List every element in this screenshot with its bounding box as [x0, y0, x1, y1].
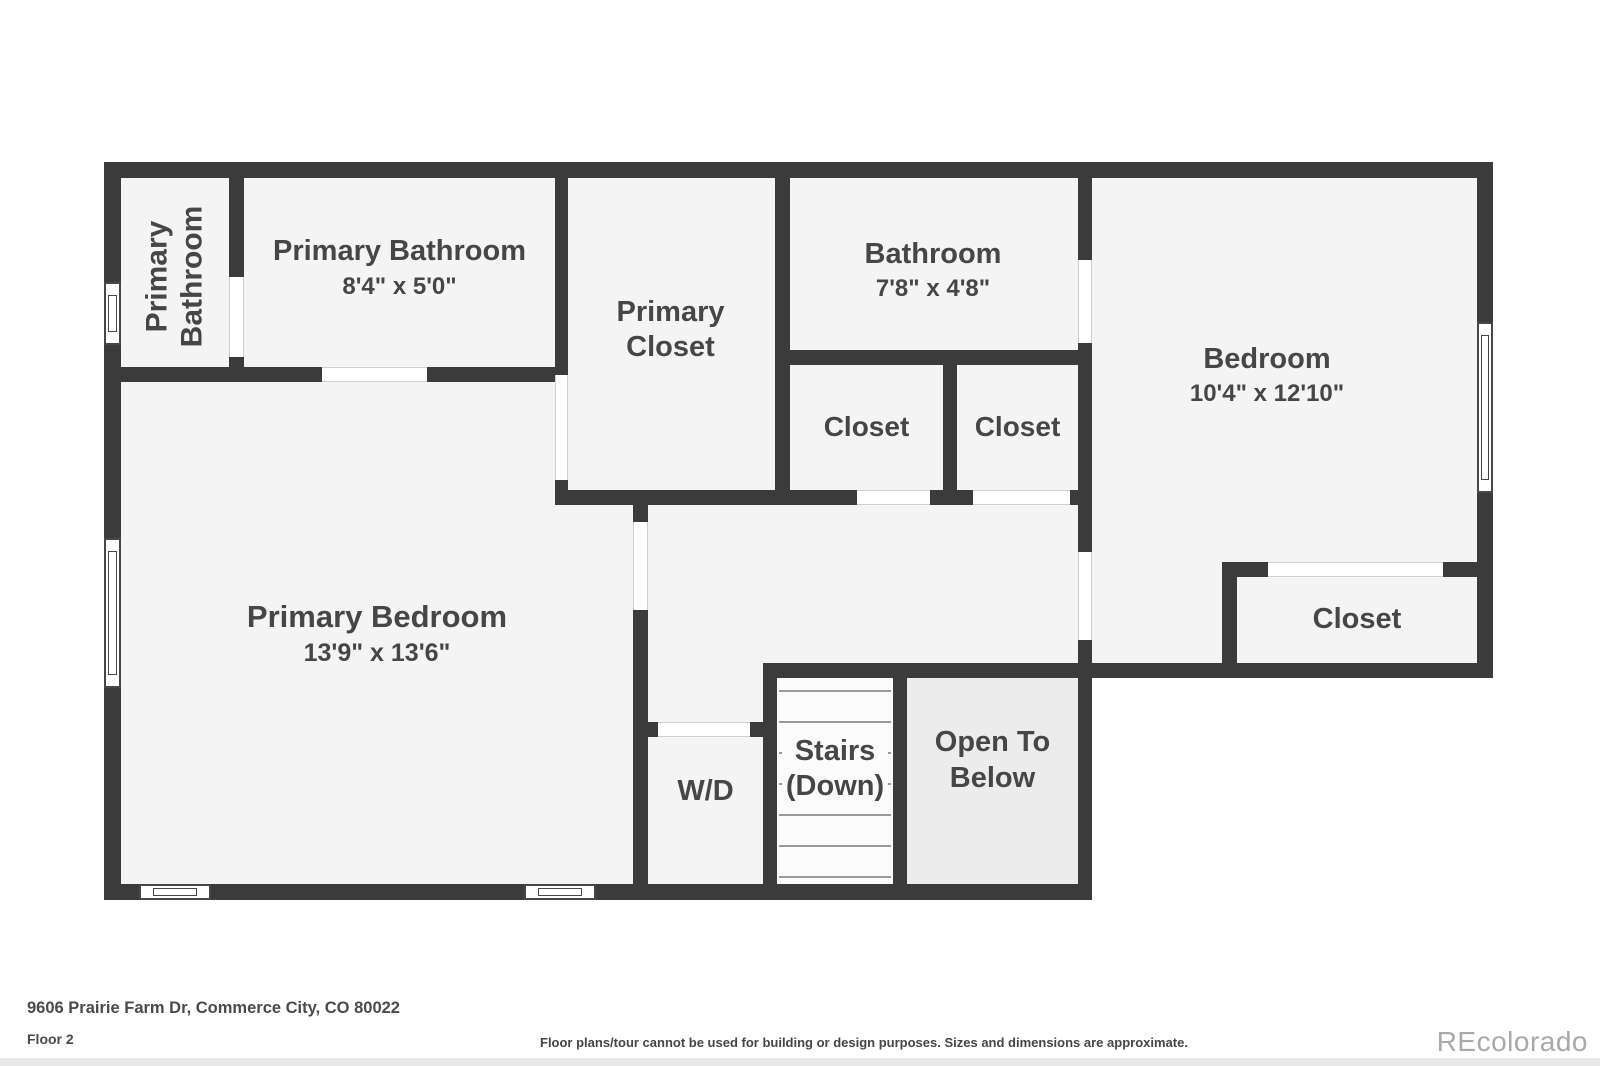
room-label-bathroom: Bathroom 7'8" x 4'8" [788, 190, 1078, 350]
room-label-stairs: Stairs (Down) [777, 679, 893, 859]
room-name: Closet [1313, 602, 1402, 637]
room-name: Primary Bedroom [247, 598, 507, 636]
room-name: Bedroom [1203, 342, 1330, 377]
wall-outer-top [104, 162, 1493, 178]
window-glass [153, 888, 197, 896]
window [104, 282, 121, 345]
door-opening-wc [229, 277, 244, 357]
door-opening-hall-closet-1 [857, 490, 930, 505]
room-label-bedroom-closet: Closet [1237, 577, 1477, 663]
footer-disclaimer: Floor plans/tour cannot be used for buil… [540, 1035, 1188, 1050]
room-label-bedroom: Bedroom 10'4" x 12'10" [1092, 195, 1442, 555]
door-opening-bedroom-closet [1268, 562, 1443, 577]
wall-outer-bottom [104, 884, 1092, 900]
room-label-hall-closet-2: Closet [957, 365, 1078, 490]
room-label-primary-bathroom: Primary Bathroom 8'4" x 5'0" [244, 195, 555, 340]
window [1477, 322, 1493, 493]
room-dims: 7'8" x 4'8" [876, 275, 990, 303]
stair-tread [779, 876, 891, 878]
window [139, 884, 211, 900]
room-name: Stairs (Down) [782, 734, 888, 805]
room-name: Primary Bathroom [273, 234, 526, 269]
room-name: W/D [677, 774, 733, 809]
window [524, 884, 596, 900]
wall-stairs-left [763, 663, 777, 900]
door-opening-primary-bedroom [633, 522, 648, 610]
window-glass [108, 295, 117, 332]
room-dims: 8'4" x 5'0" [342, 273, 456, 301]
door-opening-bedroom [1078, 552, 1092, 640]
room-label-primary-bathroom-wc: Primary Bathroom [121, 185, 229, 367]
wall-lower-section-top [763, 663, 1493, 678]
floor-plan-page: Primary Bathroom Primary Bathroom 8'4" x… [0, 0, 1600, 1066]
room-dims: 13'9" x 13'6" [304, 639, 451, 668]
window-glass [538, 888, 582, 896]
room-label-hall-closet-1: Closet [790, 365, 943, 490]
wall-bedroom-closet-left [1222, 562, 1237, 678]
window [104, 538, 121, 688]
wall-stairs-right [893, 663, 907, 900]
wall-bathroom-bottom [775, 350, 1092, 365]
door-opening-bathroom [1078, 260, 1092, 343]
window-glass [1481, 335, 1489, 480]
brand-logo: REcolorado [1437, 1026, 1588, 1058]
room-label-laundry: W/D [648, 727, 763, 857]
footer-floor-label: Floor 2 [27, 1031, 74, 1047]
window-glass [108, 551, 117, 675]
room-name: Open To Below [935, 725, 1050, 796]
room-dims: 10'4" x 12'10" [1190, 380, 1344, 408]
footer-address: 9606 Prairie Farm Dr, Commerce City, CO … [27, 999, 400, 1018]
door-opening-hall-closet-2 [973, 490, 1070, 505]
wall-closet-divider [943, 350, 957, 505]
door-opening-primary-bathroom [322, 367, 427, 382]
room-label-open-to-below: Open To Below [907, 663, 1078, 858]
room-name: Primary Bathroom [141, 205, 210, 347]
room-name: Closet [824, 410, 910, 444]
room-name: Bathroom [865, 237, 1002, 272]
wall-outer-left [104, 162, 121, 900]
room-name: Primary Closet [616, 295, 724, 366]
room-name: Closet [975, 410, 1061, 444]
room-label-primary-bedroom: Primary Bedroom 13'9" x 13'6" [121, 382, 633, 884]
footer-bar [0, 1058, 1600, 1066]
